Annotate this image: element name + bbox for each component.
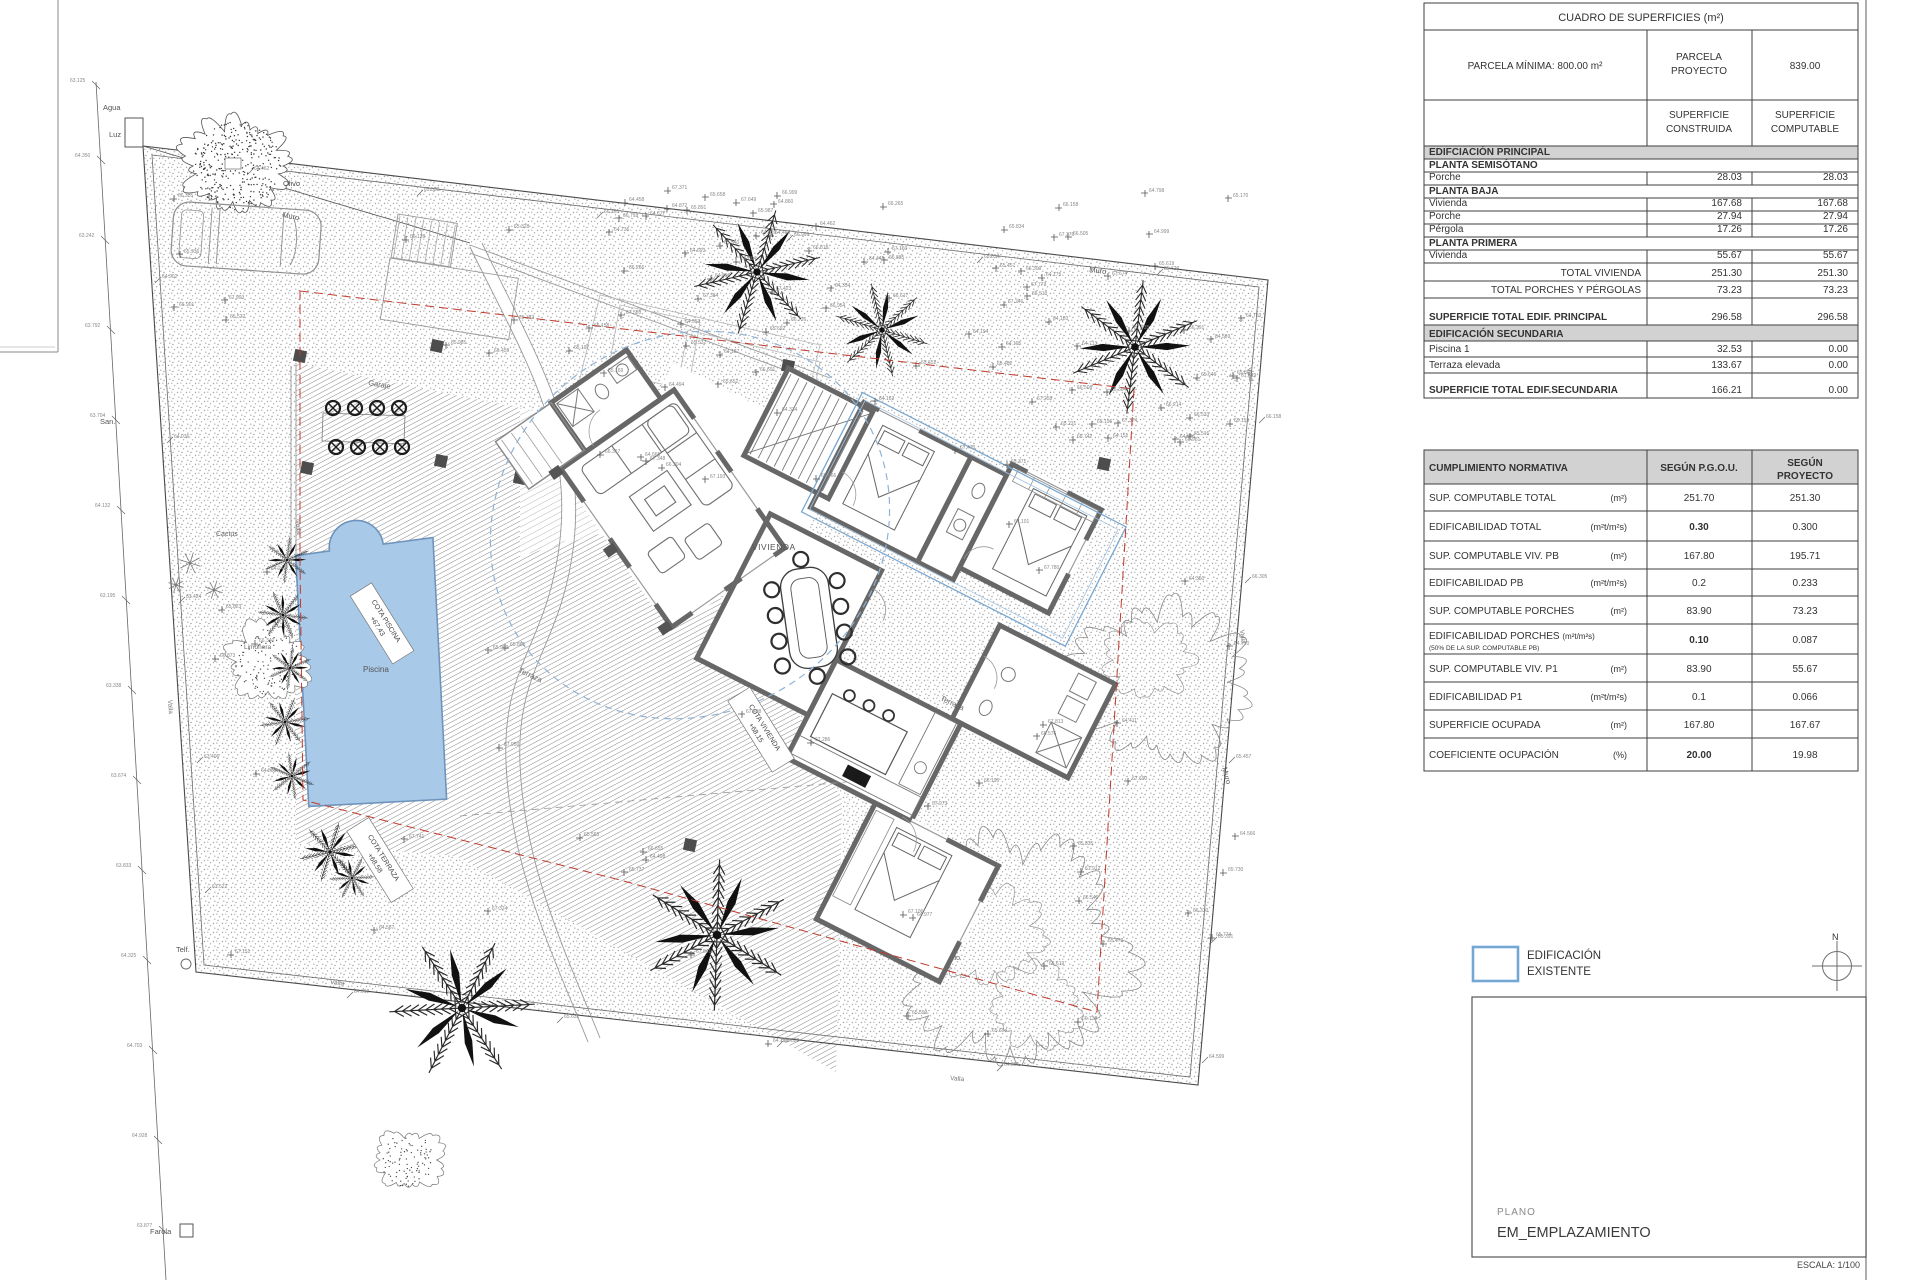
svg-text:0.066: 0.066 — [1792, 692, 1817, 703]
svg-text:67.423: 67.423 — [776, 286, 792, 292]
svg-text:67.470: 67.470 — [960, 445, 976, 451]
svg-text:Piscina: Piscina — [363, 665, 389, 674]
svg-text:55.67: 55.67 — [1792, 664, 1817, 675]
svg-text:66.265: 66.265 — [888, 201, 904, 207]
svg-text:839.00: 839.00 — [1790, 61, 1821, 72]
svg-text:SUP. COMPUTABLE VIV. P1: SUP. COMPUTABLE VIV. P1 — [1429, 664, 1558, 675]
svg-text:66.128: 66.128 — [410, 234, 426, 240]
svg-text:67.193: 67.193 — [710, 474, 726, 480]
svg-text:0.1: 0.1 — [1692, 692, 1706, 703]
svg-text:CONSTRUIDA: CONSTRUIDA — [1666, 124, 1732, 135]
svg-text:64.458: 64.458 — [629, 197, 645, 203]
svg-text:32.53: 32.53 — [1717, 344, 1742, 355]
svg-text:67.973: 67.973 — [932, 801, 948, 807]
svg-text:0.00: 0.00 — [1829, 344, 1849, 355]
svg-text:Valla: Valla — [950, 1075, 965, 1083]
svg-text:(m²): (m²) — [1611, 551, 1628, 561]
svg-text:64.350: 64.350 — [75, 153, 91, 159]
svg-text:64.999: 64.999 — [1154, 229, 1170, 235]
svg-text:66.204: 66.204 — [666, 462, 682, 468]
svg-text:65.891: 65.891 — [691, 205, 707, 211]
svg-text:64.783: 64.783 — [1246, 313, 1262, 319]
svg-text:(m²): (m²) — [1611, 664, 1628, 674]
svg-text:0.233: 0.233 — [1792, 578, 1817, 589]
svg-text:27.94: 27.94 — [1823, 211, 1848, 222]
svg-text:67.258: 67.258 — [1037, 396, 1053, 402]
svg-text:63.792: 63.792 — [85, 323, 101, 329]
svg-text:66.901: 66.901 — [179, 302, 195, 308]
svg-text:EM_EMPLAZAMIENTO: EM_EMPLAZAMIENTO — [1497, 1225, 1651, 1241]
svg-text:251.70: 251.70 — [1684, 493, 1715, 504]
svg-text:65.658: 65.658 — [710, 192, 726, 198]
svg-text:66.158: 66.158 — [1063, 202, 1079, 208]
svg-text:64.350: 64.350 — [1189, 576, 1205, 582]
svg-text:67.813: 67.813 — [1048, 719, 1064, 725]
svg-text:66.576: 66.576 — [1041, 731, 1057, 737]
svg-text:CUADRO DE SUPERFICIES (m²): CUADRO DE SUPERFICIES (m²) — [1558, 12, 1724, 24]
svg-text:65.742: 65.742 — [1077, 434, 1093, 440]
svg-text:66.999: 66.999 — [782, 190, 798, 196]
svg-text:64.569: 64.569 — [1215, 334, 1231, 340]
svg-text:65.632: 65.632 — [564, 1014, 580, 1020]
svg-text:65.472: 65.472 — [1108, 938, 1124, 944]
svg-text:66.265: 66.265 — [604, 209, 620, 215]
svg-text:66.305: 66.305 — [1252, 574, 1268, 580]
svg-text:66.818: 66.818 — [813, 245, 829, 251]
svg-text:67.371: 67.371 — [672, 185, 688, 191]
svg-text:64.693: 64.693 — [690, 248, 706, 254]
svg-text:64.194: 64.194 — [973, 329, 989, 335]
svg-text:28.03: 28.03 — [1823, 172, 1848, 183]
svg-text:65.391: 65.391 — [1218, 934, 1234, 940]
svg-text:73.23: 73.23 — [1823, 285, 1848, 296]
svg-text:65.692: 65.692 — [770, 326, 786, 332]
svg-text:67.286: 67.286 — [815, 737, 831, 743]
svg-text:65.835: 65.835 — [1078, 841, 1094, 847]
svg-text:66.158: 66.158 — [1266, 414, 1282, 420]
svg-text:67.841: 67.841 — [696, 949, 712, 955]
svg-text:66.505: 66.505 — [1073, 231, 1089, 237]
svg-text:66.330: 66.330 — [1193, 908, 1209, 914]
svg-text:66.266: 66.266 — [629, 265, 645, 271]
svg-text:67.741: 67.741 — [409, 834, 425, 840]
svg-text:67.384: 67.384 — [703, 293, 719, 299]
svg-text:195.71: 195.71 — [1790, 551, 1821, 562]
svg-text:66.885: 66.885 — [889, 255, 905, 261]
svg-text:(%): (%) — [1613, 750, 1627, 760]
svg-text:64.494: 64.494 — [669, 382, 685, 388]
svg-text:65.652: 65.652 — [921, 360, 937, 366]
svg-text:0.00: 0.00 — [1829, 360, 1849, 371]
svg-text:63.125: 63.125 — [70, 78, 86, 84]
svg-text:Valla: Valla — [294, 520, 302, 535]
svg-text:64.334: 64.334 — [782, 407, 798, 413]
svg-text:64.798: 64.798 — [1149, 188, 1165, 194]
svg-text:63.877: 63.877 — [137, 1223, 153, 1229]
svg-text:63.522: 63.522 — [212, 884, 228, 890]
svg-text:COEFICIENTE OCUPACIÓN: COEFICIENTE OCUPACIÓN — [1429, 748, 1559, 761]
svg-text:17.26: 17.26 — [1823, 224, 1848, 235]
svg-text:SEGÚN P.G.O.U.: SEGÚN P.G.O.U. — [1660, 461, 1738, 474]
svg-text:Vivienda: Vivienda — [1429, 198, 1468, 209]
svg-text:64.175: 64.175 — [1046, 272, 1062, 278]
svg-text:(m²t/m²s): (m²t/m²s) — [1591, 578, 1627, 588]
svg-text:64.466: 64.466 — [775, 230, 791, 236]
svg-text:67.912: 67.912 — [1085, 866, 1101, 872]
svg-text:Valla: Valla — [166, 700, 174, 715]
svg-text:Luz: Luz — [109, 130, 121, 139]
svg-text:64.103: 64.103 — [1053, 316, 1069, 322]
svg-text:65.540: 65.540 — [724, 240, 740, 246]
svg-text:Limonera: Limonera — [244, 644, 271, 651]
svg-text:64.567: 64.567 — [379, 925, 395, 931]
svg-text:66.718: 66.718 — [623, 213, 639, 219]
svg-text:SUPERFICIE: SUPERFICIE — [1669, 110, 1729, 121]
svg-text:63.424: 63.424 — [186, 594, 202, 600]
svg-text:63.833: 63.833 — [116, 863, 132, 869]
svg-text:66.954: 66.954 — [830, 303, 846, 309]
svg-text:65.457: 65.457 — [1236, 754, 1252, 760]
svg-text:17.26: 17.26 — [1717, 224, 1742, 235]
svg-text:64.187: 64.187 — [724, 349, 740, 355]
svg-text:66.738: 66.738 — [1082, 1016, 1098, 1022]
svg-text:(m²t/m²s): (m²t/m²s) — [1591, 522, 1627, 532]
svg-text:73.23: 73.23 — [1717, 285, 1742, 296]
svg-text:EXISTENTE: EXISTENTE — [1527, 966, 1591, 978]
svg-text:67.520: 67.520 — [626, 310, 642, 316]
svg-text:64.868: 64.868 — [261, 768, 277, 774]
svg-text:64.860: 64.860 — [778, 199, 794, 205]
svg-text:65.231: 65.231 — [1061, 421, 1077, 427]
svg-text:63.242: 63.242 — [79, 233, 95, 239]
svg-text:65.936: 65.936 — [184, 249, 200, 255]
svg-text:(m²): (m²) — [1611, 493, 1628, 503]
svg-text:66.726: 66.726 — [791, 317, 807, 323]
svg-text:66.864: 66.864 — [741, 256, 757, 262]
svg-text:66.655: 66.655 — [648, 846, 664, 852]
svg-text:65.737: 65.737 — [629, 867, 645, 873]
svg-text:66.999: 66.999 — [794, 232, 810, 238]
svg-text:66.317: 66.317 — [605, 449, 621, 455]
svg-text:64.553: 64.553 — [685, 319, 701, 325]
svg-text:64.255: 64.255 — [1004, 1062, 1020, 1068]
svg-text:65.328: 65.328 — [514, 224, 530, 230]
svg-text:67.151: 67.151 — [235, 949, 251, 955]
svg-text:66.214: 66.214 — [1166, 402, 1182, 408]
svg-text:64.713: 64.713 — [1082, 341, 1098, 347]
svg-text:Porche: Porche — [1429, 172, 1461, 183]
svg-text:64.872: 64.872 — [672, 203, 688, 209]
svg-text:67.324: 67.324 — [492, 906, 508, 912]
svg-text:63.406: 63.406 — [204, 754, 220, 760]
svg-text:65.634: 65.634 — [984, 254, 1000, 260]
svg-text:64.599: 64.599 — [1209, 1054, 1225, 1060]
svg-text:296.58: 296.58 — [1817, 312, 1848, 323]
svg-text:20.00: 20.00 — [1686, 750, 1711, 761]
svg-text:64.566: 64.566 — [1240, 831, 1256, 837]
svg-text:EDIFICACIÓN SECUNDARIA: EDIFICACIÓN SECUNDARIA — [1429, 327, 1563, 340]
svg-text:64.703: 64.703 — [127, 1043, 143, 1049]
svg-text:65.513: 65.513 — [1032, 291, 1048, 297]
svg-text:67.374: 67.374 — [1122, 418, 1138, 424]
svg-text:65.373: 65.373 — [519, 315, 535, 321]
svg-text:28.03: 28.03 — [1717, 172, 1742, 183]
svg-text:EDIFICABILIDAD TOTAL: EDIFICABILIDAD TOTAL — [1429, 522, 1542, 533]
svg-text:SUP. COMPUTABLE TOTAL: SUP. COMPUTABLE TOTAL — [1429, 493, 1556, 504]
svg-text:64.462: 64.462 — [820, 221, 836, 227]
svg-text:55.67: 55.67 — [1823, 250, 1848, 261]
svg-text:64.677: 64.677 — [650, 211, 666, 217]
svg-text:PARCELA MÍNIMA: 800.00 m²: PARCELA MÍNIMA: 800.00 m² — [1468, 59, 1604, 72]
svg-text:55.67: 55.67 — [1717, 250, 1742, 261]
svg-text:83.90: 83.90 — [1686, 664, 1711, 675]
svg-text:65.646: 65.646 — [1201, 372, 1217, 378]
svg-text:27.94: 27.94 — [1717, 211, 1742, 222]
svg-text:ESCALA: 1/100: ESCALA: 1/100 — [1797, 1260, 1860, 1270]
svg-text:66.617: 66.617 — [893, 293, 909, 299]
svg-text:PROYECTO: PROYECTO — [1777, 471, 1833, 482]
svg-text:SUPERFICIE TOTAL EDIF. PRINCIP: SUPERFICIE TOTAL EDIF. PRINCIPAL — [1429, 312, 1607, 323]
svg-text:67.101: 67.101 — [1014, 519, 1030, 525]
svg-text:SUPERFICIE TOTAL EDIF.SECUNDAR: SUPERFICIE TOTAL EDIF.SECUNDARIA — [1429, 385, 1618, 396]
svg-text:65.730: 65.730 — [1228, 867, 1244, 873]
svg-text:EDIFICABILIDAD P1: EDIFICABILIDAD P1 — [1429, 692, 1523, 703]
svg-text:0.10: 0.10 — [1689, 635, 1709, 646]
svg-text:65.532: 65.532 — [691, 340, 707, 346]
svg-text:66.508: 66.508 — [1077, 385, 1093, 391]
svg-text:(m²): (m²) — [1611, 606, 1628, 616]
svg-text:65.169: 65.169 — [608, 368, 624, 374]
svg-text:296.58: 296.58 — [1711, 312, 1742, 323]
svg-text:(m²): (m²) — [1611, 720, 1628, 730]
svg-text:64.411: 64.411 — [1122, 718, 1137, 724]
svg-text:65.565: 65.565 — [584, 832, 600, 838]
svg-text:83.90: 83.90 — [1686, 606, 1711, 617]
svg-text:65.159: 65.159 — [1234, 418, 1250, 424]
svg-text:67.993: 67.993 — [229, 295, 245, 301]
svg-text:65.834: 65.834 — [1009, 224, 1025, 230]
svg-text:65.822: 65.822 — [784, 1038, 800, 1044]
svg-text:PLANTA SEMISÓTANO: PLANTA SEMISÓTANO — [1429, 158, 1538, 171]
svg-text:167.68: 167.68 — [1817, 198, 1848, 209]
svg-text:EDIFICABILIDAD PB: EDIFICABILIDAD PB — [1429, 578, 1524, 589]
svg-text:65.599: 65.599 — [912, 1010, 928, 1016]
svg-text:65.516: 65.516 — [1194, 431, 1210, 437]
svg-text:63.195: 63.195 — [100, 593, 116, 599]
svg-text:67.950: 67.950 — [504, 742, 520, 748]
svg-text:251.30: 251.30 — [1790, 493, 1821, 504]
svg-text:EDIFCIACIÓN PRINCIPAL: EDIFCIACIÓN PRINCIPAL — [1429, 145, 1550, 158]
svg-text:64.241: 64.241 — [271, 566, 287, 572]
svg-text:66.873: 66.873 — [220, 653, 236, 659]
svg-text:SUPERFICIE: SUPERFICIE — [1775, 110, 1835, 121]
svg-text:Terraza elevada: Terraza elevada — [1429, 360, 1501, 371]
svg-text:64.132: 64.132 — [95, 503, 111, 509]
svg-text:66.666: 66.666 — [821, 473, 837, 479]
svg-text:65.170: 65.170 — [1233, 193, 1249, 199]
svg-text:0.2: 0.2 — [1692, 578, 1706, 589]
svg-text:(m²t/m²s): (m²t/m²s) — [1591, 692, 1627, 702]
svg-text:66.619: 66.619 — [1049, 961, 1065, 967]
svg-text:64.151: 64.151 — [1113, 433, 1129, 439]
svg-text:66.385: 66.385 — [178, 193, 194, 199]
svg-text:65.652: 65.652 — [723, 379, 739, 385]
svg-text:67.773: 67.773 — [1031, 282, 1047, 288]
svg-text:66.691: 66.691 — [760, 367, 776, 373]
svg-text:67.348: 67.348 — [650, 456, 666, 462]
svg-text:Pérgola: Pérgola — [1429, 224, 1464, 235]
svg-text:65.522: 65.522 — [230, 314, 246, 320]
svg-text:65.960: 65.960 — [493, 645, 509, 651]
svg-text:66.391: 66.391 — [1189, 325, 1205, 331]
svg-text:PLANO: PLANO — [1497, 1207, 1536, 1218]
svg-text:65.371: 65.371 — [1011, 459, 1027, 465]
svg-text:PLANTA BAJA: PLANTA BAJA — [1429, 186, 1498, 197]
svg-text:PROYECTO: PROYECTO — [1671, 66, 1727, 77]
svg-text:65.107: 65.107 — [574, 345, 590, 351]
svg-text:63.704: 63.704 — [90, 413, 106, 419]
svg-text:64.902: 64.902 — [162, 274, 178, 280]
svg-text:251.30: 251.30 — [1817, 268, 1848, 279]
svg-text:65.985: 65.985 — [451, 340, 467, 346]
svg-text:65.629: 65.629 — [1164, 266, 1180, 272]
svg-text:(50% DE LA SUP. COMPUTABLE PB: (50% DE LA SUP. COMPUTABLE PB) — [1429, 645, 1539, 652]
svg-text:Piscina 1: Piscina 1 — [1429, 344, 1470, 355]
svg-text:65.861: 65.861 — [510, 642, 526, 648]
svg-text:67.629: 67.629 — [1241, 373, 1257, 379]
svg-text:Agua: Agua — [103, 103, 121, 112]
svg-text:66.546: 66.546 — [1083, 895, 1099, 901]
svg-text:Telf.: Telf. — [176, 945, 190, 954]
svg-text:PARCELA: PARCELA — [1676, 52, 1722, 63]
svg-text:SEGÚN: SEGÚN — [1787, 456, 1823, 469]
svg-text:67.106: 67.106 — [908, 909, 924, 915]
svg-text:Porche: Porche — [1429, 211, 1461, 222]
svg-text:TOTAL PORCHES Y PÉRGOLAS: TOTAL PORCHES Y PÉRGOLAS — [1491, 283, 1641, 296]
svg-text:N: N — [1832, 932, 1839, 942]
svg-text:67.690: 67.690 — [1132, 776, 1148, 782]
svg-text:64.928: 64.928 — [132, 1133, 148, 1139]
svg-text:63.674: 63.674 — [111, 773, 127, 779]
svg-text:67.649: 67.649 — [741, 197, 757, 203]
svg-text:0.00: 0.00 — [1829, 385, 1849, 396]
svg-text:Cactus: Cactus — [216, 531, 238, 538]
svg-text:19.98: 19.98 — [1792, 750, 1817, 761]
svg-text:64.036: 64.036 — [174, 434, 190, 440]
svg-text:0.087: 0.087 — [1792, 635, 1817, 646]
svg-text:251.30: 251.30 — [1711, 268, 1742, 279]
svg-text:67.160: 67.160 — [892, 246, 908, 252]
svg-text:65.457: 65.457 — [1000, 263, 1016, 269]
svg-text:65.558: 65.558 — [424, 187, 440, 193]
svg-text:Olivo: Olivo — [283, 179, 300, 188]
svg-text:64.462: 64.462 — [254, 166, 270, 172]
svg-text:133.67: 133.67 — [1711, 360, 1742, 371]
svg-text:167.80: 167.80 — [1684, 551, 1715, 562]
svg-text:67.498: 67.498 — [746, 709, 762, 715]
svg-text:VIVIENDA: VIVIENDA — [752, 542, 796, 552]
svg-text:66.309: 66.309 — [1026, 266, 1042, 272]
svg-text:66.195: 66.195 — [984, 778, 1000, 784]
svg-text:66.459: 66.459 — [494, 348, 510, 354]
svg-text:Valla: Valla — [330, 979, 345, 987]
svg-text:0.300: 0.300 — [1792, 522, 1817, 533]
svg-text:64.896: 64.896 — [715, 273, 731, 279]
svg-text:PLANTA PRIMERA: PLANTA PRIMERA — [1429, 238, 1517, 249]
svg-text:166.21: 166.21 — [1711, 385, 1742, 396]
svg-text:64.498: 64.498 — [650, 854, 666, 860]
svg-text:63.338: 63.338 — [106, 683, 122, 689]
svg-text:167.80: 167.80 — [1684, 720, 1715, 731]
svg-text:0.30: 0.30 — [1689, 522, 1709, 533]
svg-text:TOTAL VIVIENDA: TOTAL VIVIENDA — [1561, 268, 1642, 279]
svg-text:64.354: 64.354 — [835, 283, 851, 289]
svg-text:SUP. COMPUTABLE VIV. PB: SUP. COMPUTABLE VIV. PB — [1429, 551, 1559, 562]
svg-text:67.780: 67.780 — [1044, 565, 1060, 571]
svg-text:COMPUTABLE: COMPUTABLE — [1771, 124, 1839, 135]
svg-text:66.384: 66.384 — [1111, 387, 1127, 393]
svg-text:64.736: 64.736 — [614, 227, 630, 233]
svg-text:67.246: 67.246 — [1008, 299, 1024, 305]
svg-text:CUMPLIMIENTO NORMATIVA: CUMPLIMIENTO NORMATIVA — [1429, 463, 1568, 474]
svg-text:SUP. COMPUTABLE PORCHES: SUP. COMPUTABLE PORCHES — [1429, 606, 1575, 617]
svg-text:Vivienda: Vivienda — [1429, 250, 1468, 261]
svg-text:64.446: 64.446 — [869, 256, 885, 262]
svg-text:73.23: 73.23 — [1792, 606, 1817, 617]
svg-text:65.823: 65.823 — [226, 604, 242, 610]
svg-text:67.735: 67.735 — [1134, 325, 1150, 331]
svg-text:64.195: 64.195 — [1006, 341, 1022, 347]
svg-text:65.158: 65.158 — [594, 323, 610, 329]
svg-text:65.196: 65.196 — [1097, 419, 1113, 425]
svg-text:64.012: 64.012 — [354, 989, 370, 995]
svg-text:167.67: 167.67 — [1790, 720, 1821, 731]
svg-text:65.482: 65.482 — [997, 361, 1013, 367]
svg-text:167.68: 167.68 — [1711, 198, 1742, 209]
svg-text:EDIFICACIÓN: EDIFICACIÓN — [1527, 949, 1601, 962]
svg-text:66.533: 66.533 — [1194, 412, 1210, 418]
svg-text:65.694: 65.694 — [992, 1028, 1008, 1034]
svg-text:65.987: 65.987 — [758, 208, 774, 214]
svg-text:SUPERFICIE OCUPADA: SUPERFICIE OCUPADA — [1429, 720, 1541, 731]
svg-text:66.340: 66.340 — [259, 638, 275, 644]
svg-text:64.162: 64.162 — [879, 396, 895, 402]
svg-text:64.325: 64.325 — [121, 953, 137, 959]
svg-text:EDIFICABILIDAD PORCHES (m²t/m²: EDIFICABILIDAD PORCHES (m²t/m²s) — [1429, 631, 1595, 642]
svg-text:67.674: 67.674 — [1112, 271, 1128, 277]
svg-text:64.710: 64.710 — [1234, 641, 1250, 647]
